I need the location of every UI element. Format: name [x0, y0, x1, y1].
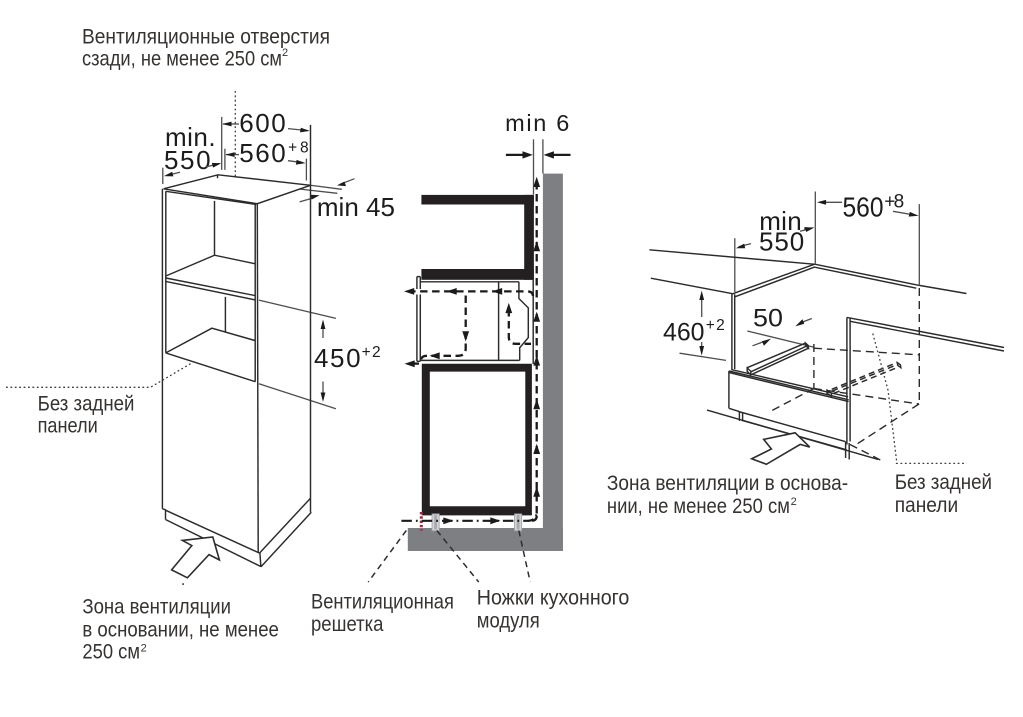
svg-text:250 см: 250 см	[82, 641, 140, 664]
svg-text:550: 550	[759, 226, 805, 256]
svg-text:560: 560	[843, 191, 884, 222]
svg-text:2: 2	[282, 47, 288, 59]
svg-text:50: 50	[753, 305, 783, 333]
svg-text:нии, не менее 250 см: нии, не менее 250 см	[607, 495, 790, 518]
svg-text:панели: панели	[38, 415, 98, 438]
svg-text:600: 600	[239, 108, 287, 138]
svg-text:460: 460	[663, 319, 705, 347]
svg-text:2: 2	[141, 642, 147, 654]
svg-text:450: 450	[314, 343, 362, 373]
svg-text:Без задней: Без задней	[38, 393, 135, 416]
svg-text:2: 2	[791, 496, 797, 508]
svg-text:решетка: решетка	[311, 613, 384, 636]
svg-text:+2: +2	[362, 344, 381, 361]
svg-text:Без задней: Без задней	[895, 471, 992, 494]
svg-text:+2: +2	[706, 317, 725, 334]
svg-text:модуля: модуля	[477, 609, 540, 632]
svg-text:Зона вентиляции: Зона вентиляции	[82, 596, 231, 619]
svg-text:Вентиляционная: Вентиляционная	[311, 590, 454, 613]
svg-text:Вентиляционные отверстия: Вентиляционные отверстия	[82, 26, 330, 49]
svg-text:min 6: min 6	[505, 110, 571, 136]
svg-text:560: 560	[239, 138, 287, 168]
svg-text:min 45: min 45	[317, 192, 395, 222]
svg-text:Зона вентиляции в основа-: Зона вентиляции в основа-	[607, 472, 848, 495]
svg-text:панели: панели	[895, 494, 959, 517]
svg-text:сзади, не менее 250 см: сзади, не менее 250 см	[82, 48, 282, 71]
svg-text:+8: +8	[884, 192, 904, 213]
svg-text:в основании, не менее: в основании, не менее	[82, 619, 279, 642]
svg-text:Ножки кухонного: Ножки кухонного	[477, 587, 630, 610]
svg-text:550: 550	[164, 145, 212, 175]
